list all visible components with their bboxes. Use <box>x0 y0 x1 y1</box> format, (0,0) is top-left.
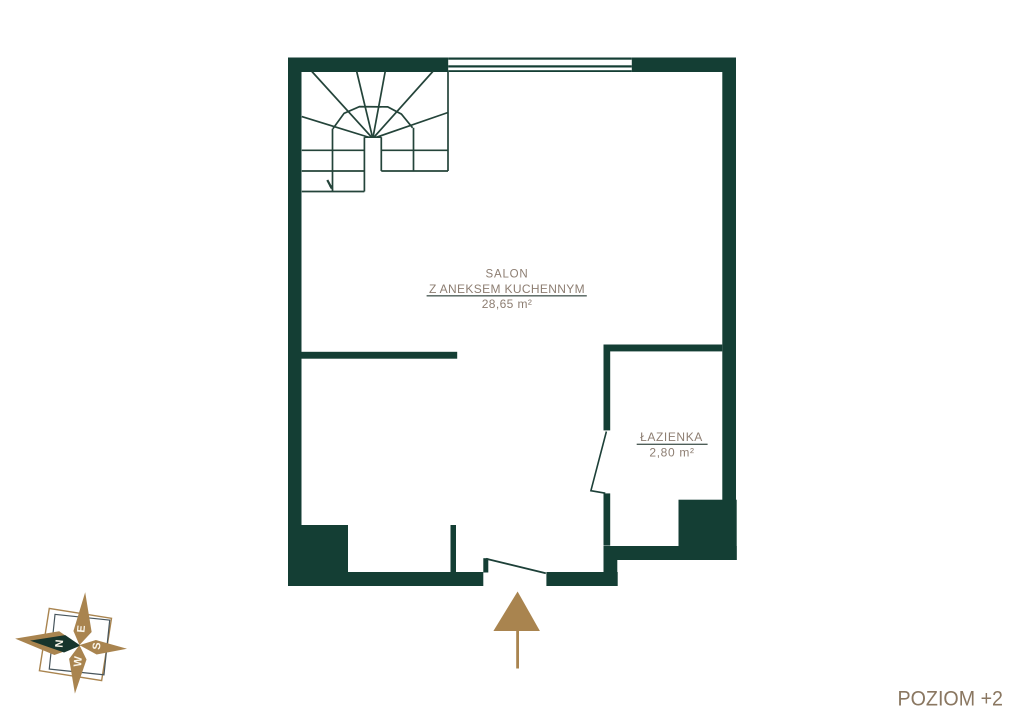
svg-text:Z ANEKSEM KUCHENNYM: Z ANEKSEM KUCHENNYM <box>429 282 585 296</box>
svg-text:N: N <box>54 639 67 648</box>
svg-text:E: E <box>75 625 88 633</box>
svg-text:SALON: SALON <box>486 269 529 281</box>
svg-text:28,65 m²: 28,65 m² <box>482 297 533 311</box>
svg-text:W: W <box>72 655 85 667</box>
svg-text:2,80 m²: 2,80 m² <box>649 446 694 460</box>
svg-text:ŁAZIENKA: ŁAZIENKA <box>640 430 703 444</box>
svg-text:S: S <box>91 642 104 650</box>
svg-text:POZIOM +2: POZIOM +2 <box>898 687 1004 711</box>
